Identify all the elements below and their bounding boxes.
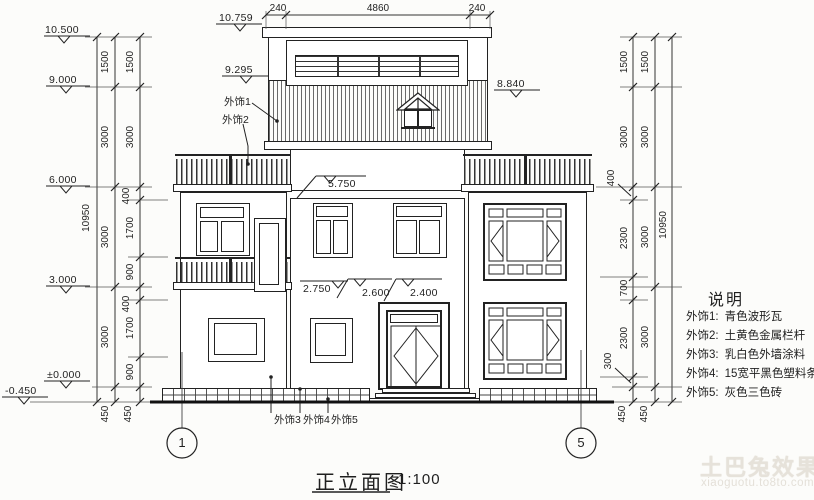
finish-callout-4: 外饰4 bbox=[303, 412, 330, 427]
finish-callout-2: 外饰2 bbox=[222, 112, 249, 127]
level-mark: 8.840 bbox=[497, 78, 525, 90]
legend-item: 外饰5:灰色三色砖 bbox=[686, 384, 814, 403]
finish-callout-1: 外饰1 bbox=[224, 94, 251, 109]
corrugated-siding bbox=[268, 80, 488, 143]
dim-left-floors: 3000 bbox=[99, 115, 113, 159]
dormer-sill bbox=[401, 127, 435, 129]
legend-list: 外饰1:青色波形瓦 外饰2:土黄色金属栏杆 外饰3:乳白色外墙涂料 外饰4:15… bbox=[686, 308, 814, 403]
dim-left-detail: 1700 bbox=[124, 306, 138, 350]
window-1f-left bbox=[208, 318, 265, 362]
level-mark: 5.750 bbox=[328, 178, 356, 190]
level-mark: 2.750 bbox=[303, 283, 331, 295]
axis-bubble-5: 5 bbox=[566, 435, 596, 450]
finish-callout-3: 外饰3 bbox=[274, 412, 301, 427]
dim-right-floors: 1500 bbox=[639, 40, 653, 84]
porch-step-3 bbox=[368, 398, 481, 403]
window-2f-left bbox=[196, 203, 250, 256]
decorative-window-1f-right bbox=[483, 302, 567, 380]
decorative-window-2f-right bbox=[483, 203, 567, 281]
level-mark: 3.000 bbox=[49, 274, 77, 286]
dim-right-detail: 700 bbox=[618, 266, 632, 310]
balcony-door-2f-left bbox=[254, 218, 286, 292]
balcony-railing-top-right bbox=[463, 154, 592, 192]
door-transom bbox=[390, 314, 438, 323]
dim-right-detail: 300 bbox=[602, 339, 616, 383]
legend-item: 外饰4:15宽平黑色塑料条嵌缝 bbox=[686, 365, 814, 384]
attic-roof-slab bbox=[262, 27, 492, 38]
dim-right-floors: 3000 bbox=[639, 115, 653, 159]
legend-title: 说明 bbox=[708, 286, 744, 310]
dim-top: 240 bbox=[462, 3, 492, 14]
attic-bottom-band bbox=[264, 141, 492, 150]
dim-right-detail: 3000 bbox=[618, 115, 632, 159]
level-mark: 9.000 bbox=[49, 74, 77, 86]
dormer-pediment bbox=[396, 92, 440, 111]
louver-post bbox=[419, 56, 421, 76]
elevation-drawing-canvas: 10.500 9.000 6.000 3.000 ±0.000 -0.450 1… bbox=[0, 0, 814, 500]
level-mark: 2.600 bbox=[362, 287, 390, 299]
louver-post bbox=[337, 56, 339, 76]
dim-left-detail: 1500 bbox=[124, 40, 138, 84]
level-mark: ±0.000 bbox=[47, 369, 81, 381]
dim-left-detail: 900 bbox=[124, 350, 138, 394]
axis-bubble-1: 1 bbox=[167, 435, 197, 450]
plinth-brick-right bbox=[479, 388, 597, 403]
level-mark: 9.295 bbox=[225, 64, 253, 76]
drawing-scale: 1:100 bbox=[398, 471, 441, 488]
louver-vent bbox=[295, 55, 459, 77]
dim-left-floors: 3000 bbox=[99, 215, 113, 259]
level-mark: 10.500 bbox=[45, 24, 79, 36]
dim-right-floors: 3000 bbox=[639, 215, 653, 259]
level-mark: -0.450 bbox=[5, 385, 37, 397]
window-2f-center-2 bbox=[393, 203, 447, 258]
dim-right-detail: 450 bbox=[616, 392, 630, 436]
dim-right-floors: 450 bbox=[638, 392, 652, 436]
watermark-url: xiaoguotu.to8to.com bbox=[701, 477, 814, 489]
legend-item: 外饰1:青色波形瓦 bbox=[686, 308, 814, 327]
dim-left-floors: 450 bbox=[99, 392, 113, 436]
center-floor-band bbox=[290, 190, 465, 199]
dim-right-detail: 2300 bbox=[618, 216, 632, 260]
window-2f-center-1 bbox=[313, 203, 353, 258]
dim-top: 240 bbox=[263, 3, 293, 14]
dim-left-detail: 1700 bbox=[124, 206, 138, 250]
entry-door bbox=[386, 310, 442, 388]
dim-left-floors: 3000 bbox=[99, 315, 113, 359]
balcony-railing-top-left bbox=[175, 154, 290, 192]
dim-right-floors: 3000 bbox=[639, 315, 653, 359]
dim-left-floors: 1500 bbox=[99, 40, 113, 84]
door-diamond-panel bbox=[390, 325, 442, 388]
dim-right-detail: 1500 bbox=[618, 40, 632, 84]
level-mark: 2.400 bbox=[410, 287, 438, 299]
dim-right-overall: 10950 bbox=[657, 203, 671, 247]
dim-right-detail: 400 bbox=[605, 156, 619, 200]
window-1f-center bbox=[310, 318, 353, 363]
dim-left-detail: 450 bbox=[122, 392, 136, 436]
drawing-title: 正立面图 bbox=[315, 466, 407, 495]
legend-item: 外饰2:土黄色金属栏杆 bbox=[686, 327, 814, 346]
louver-panel bbox=[286, 40, 468, 86]
finish-callout-5: 外饰5 bbox=[331, 412, 358, 427]
dormer-window bbox=[404, 110, 432, 127]
dormer-mullion bbox=[417, 111, 419, 126]
level-mark: 10.759 bbox=[219, 12, 253, 24]
level-mark: 6.000 bbox=[49, 174, 77, 186]
plinth-brick-left bbox=[162, 388, 370, 403]
legend-item: 外饰3:乳白色外墙涂料 bbox=[686, 346, 814, 365]
dim-right-detail: 2300 bbox=[618, 316, 632, 360]
dim-left-overall: 10950 bbox=[80, 196, 94, 240]
louver-post bbox=[378, 56, 380, 76]
dim-top: 4860 bbox=[356, 3, 400, 14]
dim-left-detail: 3000 bbox=[124, 115, 138, 159]
